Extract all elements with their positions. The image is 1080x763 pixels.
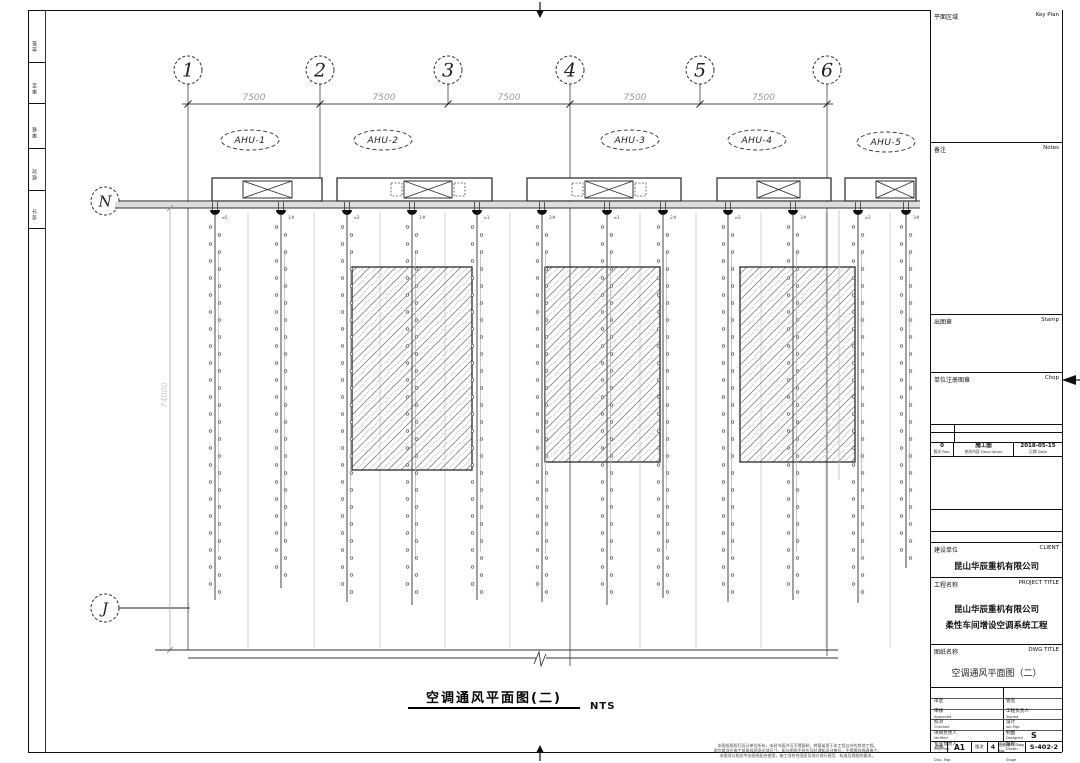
- dimension-value: 7500: [243, 93, 266, 103]
- dimension-value: 7500: [752, 93, 775, 103]
- duct-elbow-icon: [658, 210, 668, 215]
- titleblock-chop: 单位注册图章 Chop: [931, 373, 1062, 425]
- ahu-tag: AHU-5: [857, 132, 915, 152]
- duct-elbow-icon: [853, 210, 863, 215]
- client-label-cn: 建设单位: [934, 545, 958, 554]
- dwgtitle-label-en: DWG TITLE: [1028, 647, 1059, 656]
- svg-text:3: 3: [442, 60, 454, 82]
- ahu-tag: AHU-4: [728, 130, 786, 150]
- svg-text:1: 1: [182, 60, 194, 82]
- ahu-tag-text: AHU-5: [870, 138, 902, 148]
- duct-elbow-icon: [472, 210, 482, 215]
- rev-label: 版次: [972, 742, 988, 752]
- duct-elbow-icon: [602, 210, 612, 215]
- titleblock-empty-panel: [931, 510, 1062, 532]
- duct-tag: 3#: [913, 215, 920, 221]
- titleblock-project: 工程名称 PROJECT TITLE 昆山华辰重机有限公司 柔性车间增设空调系统…: [931, 578, 1062, 645]
- titleblock-dwgtitle: 图纸名称 DWG TITLE 空调通风平面图（二）: [931, 645, 1062, 688]
- ahu-tag-text: AHU-1: [234, 136, 266, 146]
- vertical-dimension: 74000: [160, 205, 173, 653]
- keyplan-label-cn: 平面区域: [934, 12, 958, 21]
- titleblock-revision-row: 0 版次 Rev. 施工图 修改内容 Description 2018-05-1…: [931, 443, 1062, 457]
- hatched-platforms: [352, 267, 855, 470]
- svg-text:N: N: [97, 193, 112, 211]
- titleblock-empty-panel: [931, 532, 1062, 543]
- duct-tag: ⌀1: [614, 215, 620, 221]
- duct-elbow-icon: [901, 210, 911, 215]
- binding-margin-line: [45, 10, 46, 752]
- duct-elbow-icon: [407, 210, 417, 215]
- scale-note: NTS: [590, 701, 615, 712]
- dimension-line: 75007500750075007500: [182, 93, 833, 108]
- frame-right: [1062, 10, 1063, 752]
- divider: [954, 425, 955, 432]
- revision-description-label: 修改内容 Description: [954, 450, 1013, 454]
- ahu-units: [212, 178, 916, 201]
- duct-tag: ⌀1: [484, 215, 490, 221]
- duct-elbow-icon: [537, 210, 547, 215]
- duct-tag: 3#: [800, 215, 807, 221]
- notes-label-cn: 备注: [934, 145, 946, 154]
- ahu-unit: [845, 178, 916, 201]
- break-mark-icon: [534, 652, 546, 666]
- frame-left: [28, 10, 29, 752]
- grid-bubble-5: 5: [686, 56, 714, 104]
- svg-text:4: 4: [563, 60, 576, 82]
- ahu-tag: AHU-2: [354, 130, 412, 150]
- keyplan-label-en: Key Plan: [1036, 12, 1059, 21]
- ahu-tags: AHU-1AHU-2AHU-3AHU-4AHU-5: [221, 130, 915, 152]
- drawing-sheet: 12345675007500750075007500NJ74000AHU-1AH…: [0, 0, 1080, 763]
- margin-label: 审定: [31, 82, 43, 94]
- dwgno-label: 图纸编号 Dwg No.: [999, 742, 1026, 752]
- ahu-tag-text: AHU-3: [614, 136, 646, 146]
- ahu-unit: [212, 178, 322, 201]
- revision-date-label: 日期 Date: [1014, 450, 1062, 454]
- svg-text:6: 6: [821, 60, 833, 82]
- margin-tick: [28, 62, 45, 63]
- titleblock-empty-row: [931, 425, 1062, 433]
- project-label-en: PROJECT TITLE: [1019, 580, 1059, 589]
- margin-tick: [28, 148, 45, 149]
- grid-bubble-J: J: [91, 594, 190, 622]
- stamp-label-cn: 出图章: [934, 317, 952, 326]
- duct-tag: ⌀3: [865, 215, 871, 221]
- titleblock-empty-panel: [931, 457, 1062, 510]
- duct-tag: ⌀3: [735, 215, 741, 221]
- revision-number-label: 版次 Rev.: [931, 450, 953, 454]
- stage-value: S: [1031, 732, 1037, 740]
- frame-top: [28, 10, 1062, 11]
- chop-label-cn: 单位注册图章: [934, 375, 970, 384]
- duct-elbow-icon: [723, 210, 733, 215]
- dwg-number: S-402-2: [1026, 742, 1062, 752]
- margin-tick: [28, 190, 45, 191]
- client-label-en: CLIENT: [1040, 545, 1059, 554]
- duct-elbow-icon: [276, 210, 286, 215]
- notes-label-en: Notes: [1043, 145, 1059, 154]
- supply-duct: ⌀3: [722, 202, 741, 602]
- divider: [954, 433, 955, 442]
- plan-drawing-canvas: 12345675007500750075007500NJ74000AHU-1AH…: [0, 0, 1080, 763]
- project-title-line2: 柔性车间增设空调系统工程: [931, 619, 1062, 631]
- ahu-unit: [527, 178, 681, 201]
- svg-text:J: J: [99, 600, 109, 618]
- ahu-tag-text: AHU-2: [367, 136, 399, 146]
- duct-elbow-icon: [342, 210, 352, 215]
- grid-bubble-1: 1: [174, 56, 202, 650]
- titleblock-keyplan: 平面区域 Key Plan: [931, 10, 1062, 143]
- vertical-dimension-value: 74000: [160, 382, 169, 407]
- ahu-tag: AHU-1: [221, 130, 279, 150]
- margin-label: 校对: [31, 168, 43, 180]
- disclaimer-text: 本图纸版权归设计单位所有，未经书面许可不得复制、转载或用于本工程以外的其他工程。…: [650, 744, 945, 758]
- supply-duct: ⌀5: [209, 202, 228, 600]
- duct-tag: 2#: [670, 215, 677, 221]
- plan-bottom-boundary: [155, 210, 839, 666]
- stamp-label-en: Stamp: [1041, 317, 1059, 326]
- titleblock-client: 建设单位 CLIENT 昆山华辰重机有限公司: [931, 543, 1062, 578]
- titleblock-stamp: 出图章 Stamp: [931, 315, 1062, 373]
- duct-tag: ⌀2: [354, 215, 360, 221]
- supply-duct: 1#: [275, 202, 295, 588]
- titleblock-empty-row: [931, 433, 1062, 443]
- titleblock: 平面区域 Key Plan 备注 Notes 出图章 Stamp 单位注册图章 …: [930, 10, 1062, 752]
- duct-tag: 1#: [419, 215, 426, 221]
- titleblock-signoff: 审定 Approved 会签 Signed 审核 Checked 工程负责人 J…: [931, 688, 1062, 742]
- supply-duct: 3#: [900, 202, 920, 568]
- project-title-line1: 昆山华辰重机有限公司: [931, 603, 1062, 615]
- ahu-tag: AHU-3: [601, 130, 659, 150]
- dwgtitle-value: 空调通风平面图（二）: [931, 666, 1062, 679]
- duct-tag: 1#: [288, 215, 295, 221]
- supply-duct: ⌀1: [471, 202, 490, 600]
- hatched-platform: [740, 267, 855, 462]
- duct-tag: ⌀5: [222, 215, 228, 221]
- margin-label: 会签: [31, 40, 43, 52]
- titleblock-notes: 备注 Notes: [931, 143, 1062, 315]
- margin-label: 设计: [31, 208, 43, 220]
- drawing-title: 空调通风平面图(二): [408, 687, 580, 709]
- client-name: 昆山华辰重机有限公司: [931, 560, 1062, 572]
- rev-value: 4: [988, 742, 999, 752]
- duct-elbow-icon: [210, 210, 220, 215]
- duct-tag: 2#: [549, 215, 556, 221]
- chop-label-en: Chop: [1045, 375, 1059, 384]
- margin-tick: [28, 228, 45, 229]
- dimension-value: 7500: [498, 93, 521, 103]
- ahu-unit: [717, 178, 831, 201]
- margin-tick: [28, 103, 45, 104]
- titleblock-bottom-row: 图幅 A1 版次 4 图纸编号 Dwg No. S-402-2: [931, 742, 1062, 752]
- ahu-tag-text: AHU-4: [741, 136, 773, 146]
- dimension-value: 7500: [624, 93, 647, 103]
- ahu-unit: [337, 178, 492, 201]
- sheet-size: A1: [948, 742, 972, 752]
- duct-elbow-icon: [788, 210, 798, 215]
- svg-text:5: 5: [694, 60, 706, 82]
- project-label-cn: 工程名称: [934, 580, 958, 589]
- dwgtitle-label-cn: 图纸名称: [934, 647, 958, 656]
- grid-bubble-3: 3: [434, 56, 462, 104]
- dimension-value: 7500: [373, 93, 396, 103]
- svg-text:2: 2: [313, 60, 326, 82]
- margin-label: 审核: [31, 126, 43, 138]
- drawing-title-block: 空调通风平面图(二): [408, 687, 580, 709]
